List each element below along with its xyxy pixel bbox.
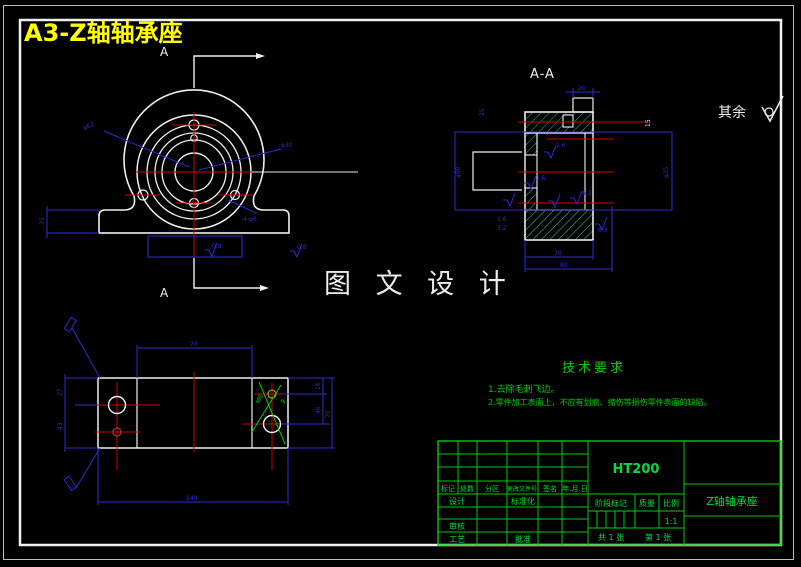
title-block: HT200 Z轴轴承座 标记 处数 分区 更改文件号 签名 年.月.日 设计 标… bbox=[438, 441, 781, 545]
page-title: A3-Z轴轴承座 bbox=[24, 19, 183, 47]
dim-top-thread: M6 bbox=[255, 394, 265, 405]
dim-top-bottom: 140 bbox=[186, 495, 198, 502]
dim-sec-re: 1.6 bbox=[556, 142, 566, 149]
dim-leader-right: φ30 bbox=[281, 142, 293, 149]
dim-sec-rb: 3.2 bbox=[497, 225, 507, 232]
material-value: HT200 bbox=[613, 462, 660, 477]
label-signature: 签名 bbox=[543, 484, 557, 493]
label-stage-mark: 阶段标记 bbox=[595, 498, 627, 508]
label-zone: 分区 bbox=[485, 484, 499, 493]
technical-requirements: 技术要求 1.去除毛刺飞边。 2.零件加工表面上，不应有划痕、擦伤等损伤零件表面… bbox=[488, 361, 712, 407]
sheet-total: 共 1 张 bbox=[598, 533, 624, 542]
dim-top-left2: 43 bbox=[57, 422, 64, 430]
watermark-text: 图 文 设 计 bbox=[324, 269, 514, 300]
dim-sec-left-top: 25 bbox=[479, 108, 486, 116]
sheet-no: 第 1 张 bbox=[645, 532, 671, 542]
dim-top-hole: 9 bbox=[280, 398, 288, 405]
dim-top-right1: 16 bbox=[315, 382, 322, 390]
dim-rough-left: 0.8 bbox=[212, 243, 222, 250]
label-mark: 标记 bbox=[441, 484, 455, 493]
label-change-file-no: 更改文件号 bbox=[507, 485, 537, 493]
dim-base-height: 25 bbox=[39, 217, 46, 225]
dim-top-right2: 46 bbox=[315, 406, 322, 414]
section-view-label: A-A bbox=[530, 67, 555, 82]
dim-sec-rf: 6.3 bbox=[582, 190, 592, 197]
dim-sec-rd: 6.3 bbox=[598, 227, 608, 234]
label-standardization: 标准化 bbox=[511, 496, 535, 506]
scale-value: 1:1 bbox=[665, 517, 678, 526]
section-label-top: A bbox=[160, 45, 169, 59]
surface-note-text: 其余 bbox=[718, 104, 746, 121]
top-view: M6 9 70 27 bbox=[57, 317, 335, 505]
dim-leader-left: φ62 bbox=[82, 121, 96, 132]
dim-sec-right-dia: φ35 bbox=[663, 166, 670, 178]
label-count: 处数 bbox=[460, 484, 474, 493]
dim-sec-left-dia: φ80 bbox=[455, 166, 462, 178]
dim-leader-holes: 4-φ6 bbox=[243, 216, 257, 223]
dim-top-right3: 70 bbox=[325, 410, 332, 418]
dim-rough-right: 0.8 bbox=[297, 244, 307, 251]
label-date: 年.月.日 bbox=[562, 484, 587, 493]
front-view: φ62 φ30 4-φ6 25 0.8 0.8 bbox=[39, 90, 358, 262]
dim-top-width: 70 bbox=[190, 341, 198, 348]
dim-sec-bore: 15 bbox=[645, 119, 652, 127]
label-approve: 批准 bbox=[515, 534, 531, 544]
label-design: 设计 bbox=[449, 496, 465, 506]
dim-sec-w1: 70 bbox=[554, 250, 562, 257]
tech-req-item-1: 1.去除毛刺飞边。 bbox=[488, 383, 560, 395]
dim-sec-ra: 1.6 bbox=[497, 216, 507, 223]
cad-drawing-window: A3-Z轴轴承座 图 文 设 计 bbox=[0, 0, 801, 567]
tech-req-item-2: 2.零件加工表面上，不应有划痕、擦伤等损伤零件表面的缺陷。 bbox=[488, 397, 712, 407]
label-scale: 比例 bbox=[663, 498, 679, 508]
dim-sec-top: 20 bbox=[578, 85, 586, 92]
drawing-sheet: A3-Z轴轴承座 图 文 设 计 bbox=[0, 0, 801, 567]
label-process: 工艺 bbox=[449, 535, 465, 544]
section-view: A-A bbox=[455, 67, 672, 272]
dim-sec-rc: 1.6 bbox=[536, 175, 546, 182]
surface-finish-note: 其余 bbox=[718, 96, 783, 121]
section-label-bottom: A bbox=[160, 286, 169, 300]
part-name: Z轴轴承座 bbox=[706, 494, 758, 508]
label-check: 审核 bbox=[449, 521, 465, 531]
tech-req-title: 技术要求 bbox=[562, 361, 626, 376]
dim-sec-w2: 80 bbox=[560, 262, 568, 269]
dim-top-left1: 27 bbox=[57, 388, 64, 396]
label-weight: 质量 bbox=[639, 498, 655, 508]
